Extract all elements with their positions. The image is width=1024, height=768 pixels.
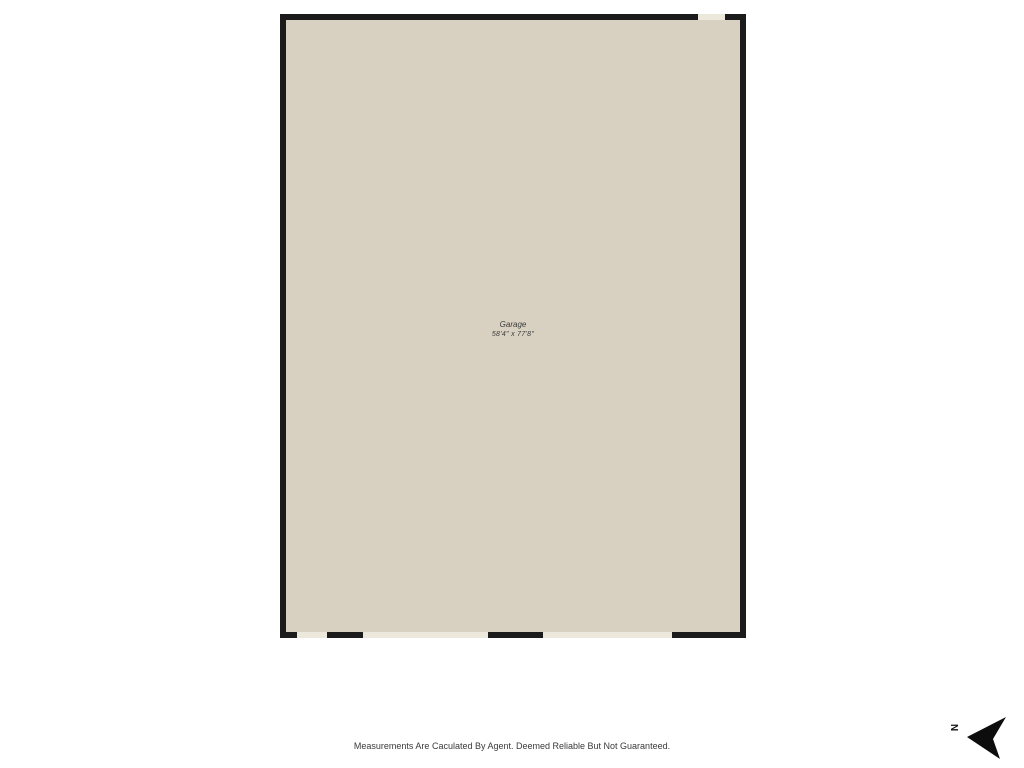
north-label: N [950,724,961,731]
measurement-disclaimer: Measurements Are Caculated By Agent. Dee… [0,741,1024,751]
door-opening [698,14,725,20]
wall-bottom [280,632,746,638]
door-opening [297,632,327,638]
north-compass: N [950,714,1012,762]
door-opening [543,632,672,638]
room-name: Garage [280,320,746,330]
room-dimensions: 58'4" x 77'8" [280,330,746,339]
wall-top [280,14,746,20]
north-arrow-icon [966,716,1010,760]
garage-floorplan: Garage 58'4" x 77'8" [280,14,746,638]
room-label: Garage 58'4" x 77'8" [280,320,746,339]
door-opening [363,632,488,638]
floorplan-page: Garage 58'4" x 77'8" Measurements Are Ca… [0,0,1024,768]
